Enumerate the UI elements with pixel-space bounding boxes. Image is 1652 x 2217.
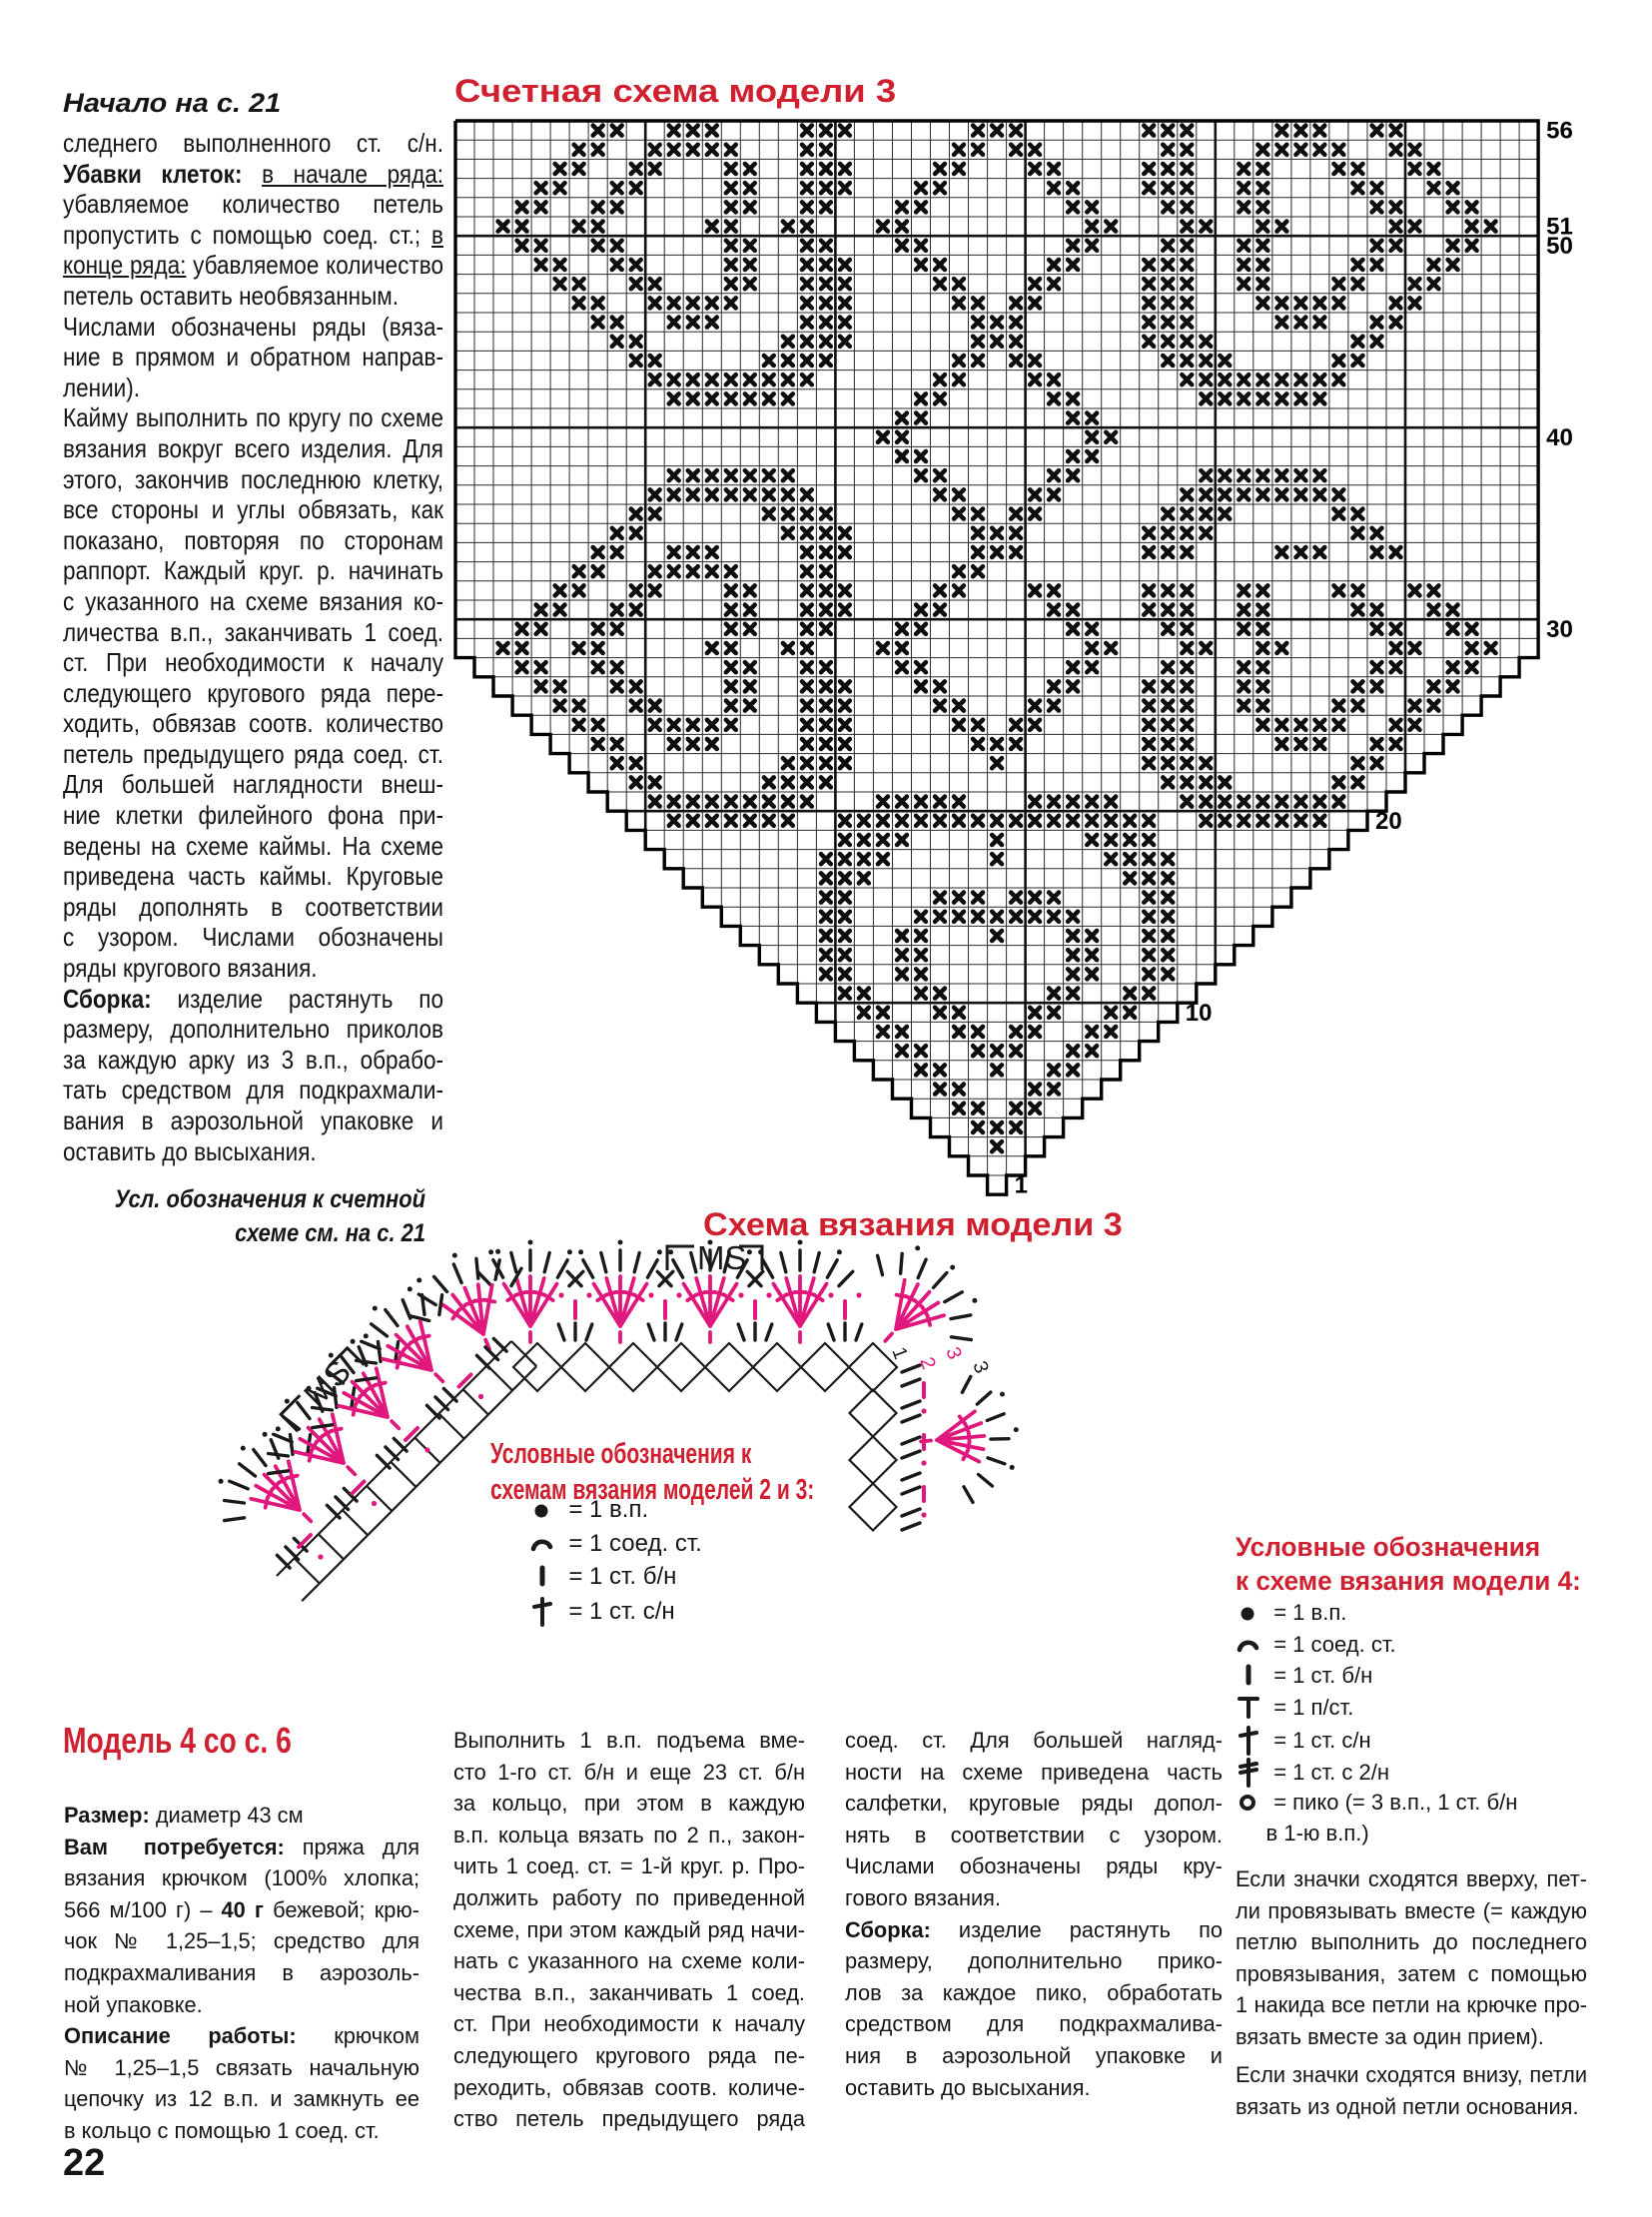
svg-text:3: 3 xyxy=(968,1358,992,1376)
svg-text:1: 1 xyxy=(1015,1172,1028,1199)
svg-text:50: 50 xyxy=(1546,233,1573,260)
svg-text:1: 1 xyxy=(887,1344,911,1362)
svg-text:2: 2 xyxy=(915,1354,939,1372)
svg-text:MS: MS xyxy=(697,1239,747,1276)
svg-text:MS: MS xyxy=(297,1352,358,1413)
svg-text:30: 30 xyxy=(1546,616,1573,643)
svg-text:3: 3 xyxy=(941,1344,965,1362)
svg-text:20: 20 xyxy=(1375,808,1402,835)
svg-text:40: 40 xyxy=(1546,424,1573,451)
svg-text:10: 10 xyxy=(1186,1000,1213,1027)
svg-text:56: 56 xyxy=(1546,118,1573,145)
